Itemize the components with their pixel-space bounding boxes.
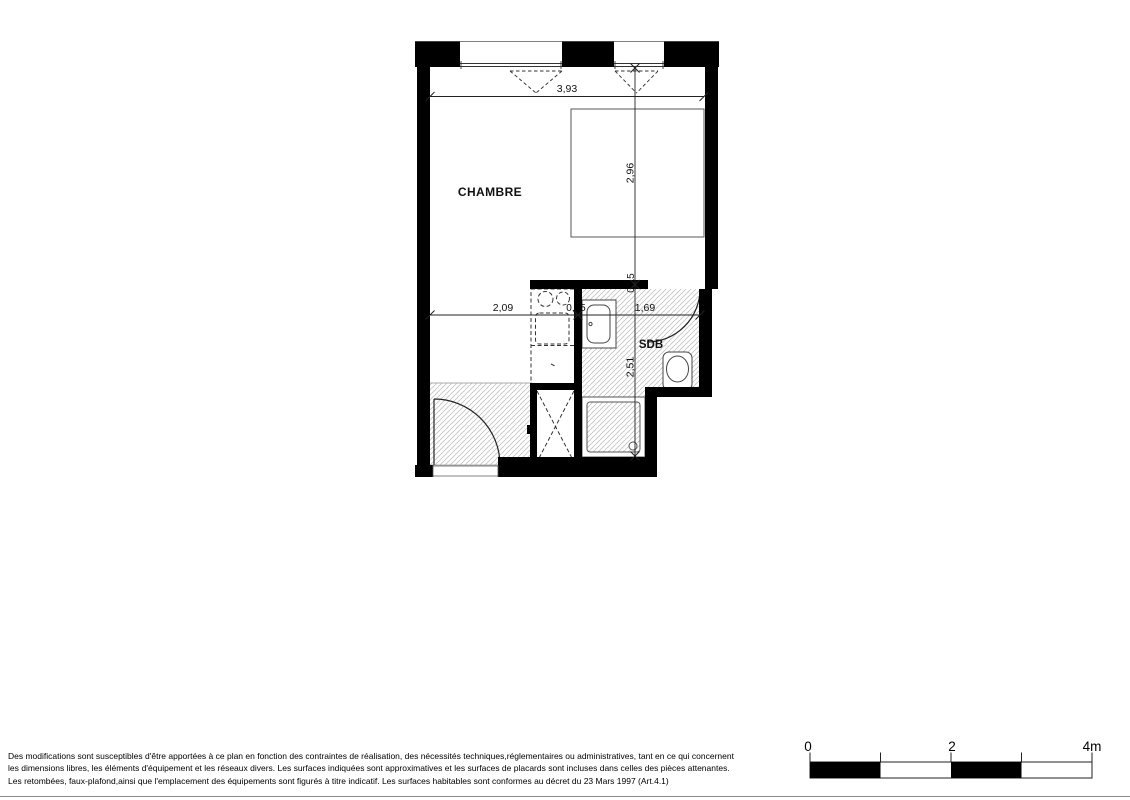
page: 0,15 0,15 [0,0,1130,800]
footer-disclaimer-line-3: Les retombées, faux-plafond,ainsi que l'… [8,775,1128,787]
washbasin [582,300,616,348]
room-label-chambre: CHAMBRE [458,185,522,199]
footer-disclaimer-line-2: les dimensions libres, les éléments d'éq… [8,762,1128,774]
floor-plan: 0,15 0,15 [0,0,1130,800]
dimension-chambre-width: 2,09 [493,302,514,314]
footer-disclaimer: Des modifications sont susceptibles d'êt… [8,750,1128,787]
dimension-sdb-width: 1,69 [635,302,656,314]
shower-drain-icon [629,442,637,450]
footer-disclaimer-line-1: Des modifications sont susceptibles d'êt… [8,750,1128,762]
closet-cross [537,391,574,462]
bed [571,109,704,237]
window-swing-indicators [510,71,658,93]
toilet [663,352,692,390]
dimension-sdb-depth: 2,51 [625,357,637,378]
room-label-sdb: SDB [639,339,663,351]
dimension-chambre-depth: 2,96 [625,163,637,184]
hob-burner-icon [538,292,553,307]
entry-threshold [433,465,498,477]
dimension-total-width: 3,93 [557,83,578,95]
shower-tray [582,397,645,457]
entry-floor-hatch [428,383,532,465]
page-bottom-border [0,796,1130,797]
kitchen-sink [536,313,570,344]
